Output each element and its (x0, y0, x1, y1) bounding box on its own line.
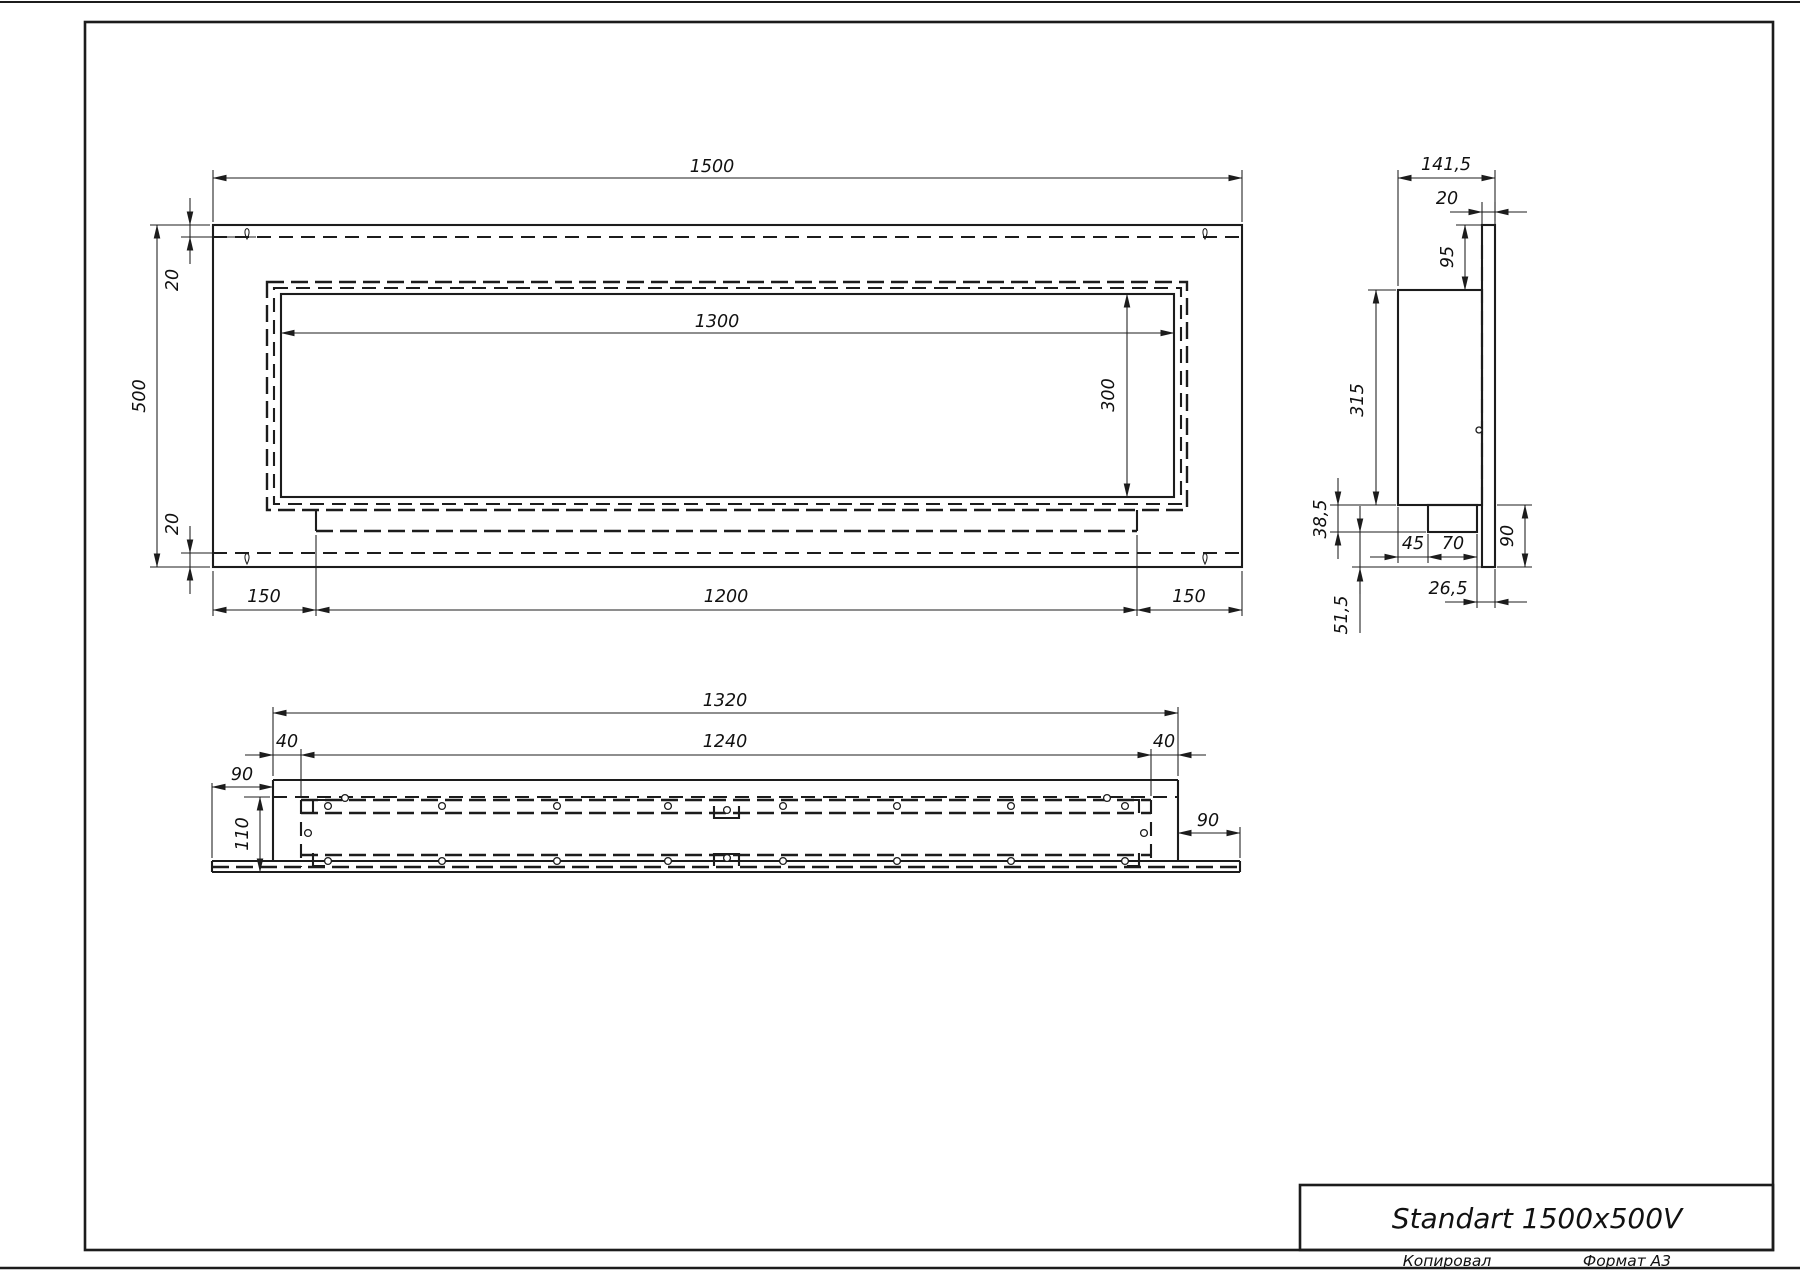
side-hole (1476, 427, 1482, 433)
dim-text: 1300 (695, 312, 740, 332)
dim-text: 315 (1348, 383, 1368, 416)
dim-text: 70 (1442, 534, 1464, 554)
dim-text: 40 (276, 732, 298, 752)
dim-text: 20 (1436, 189, 1458, 209)
dim-side-gap: 51,5 (1332, 506, 1482, 634)
side-tray (1428, 505, 1477, 532)
dim-bottom-tab-right: 90 (1178, 811, 1240, 858)
dim-front-inset-top: 20 (163, 198, 256, 291)
dim-text: 90 (1498, 525, 1518, 547)
drawing-sheet: Standart 1500x500V Копировал Формат А3 1… (0, 0, 1800, 1273)
dim-text: 26,5 (1429, 579, 1468, 599)
dim-text: 1320 (703, 691, 748, 711)
dim-text: 1500 (690, 157, 735, 177)
title-block-model: Standart 1500x500V (1392, 1202, 1684, 1235)
dim-front-opening-height: 300 (1099, 294, 1127, 497)
bottom-corner-bracket (313, 800, 325, 813)
dim-text: 20 (163, 513, 183, 535)
bottom-view: 1320 1240 40 40 90 110 (212, 691, 1240, 872)
dim-text: 300 (1099, 378, 1119, 411)
dim-text: 110 (233, 817, 253, 850)
dim-side-body-height: 315 (1330, 290, 1396, 505)
dim-bottom-opening-chain: 1240 40 40 (245, 732, 1206, 796)
dim-text: 150 (1172, 587, 1205, 607)
dim-text: 38,5 (1311, 500, 1331, 539)
dim-front-inset-bottom: 20 (163, 513, 212, 594)
side-front-plate (1482, 225, 1495, 567)
side-body (1398, 290, 1482, 505)
dim-front-bottom-chain: 150 1200 150 (213, 535, 1242, 616)
dim-text: 150 (247, 587, 280, 607)
dim-front-width: 1500 (213, 157, 1242, 222)
dim-text: 1240 (703, 732, 748, 752)
dim-text: 500 (130, 379, 150, 412)
mounting-hook-icons (245, 229, 1207, 565)
dim-text: 95 (1438, 246, 1458, 268)
dim-side-plate-above: 95 (1438, 225, 1482, 290)
format-label: Формат А3 (1583, 1252, 1671, 1270)
dim-text: 20 (163, 269, 183, 291)
drawing-border (85, 22, 1773, 1250)
mounting-hook-icon (245, 554, 249, 565)
dim-text: 51,5 (1332, 596, 1352, 635)
dim-side-plate-below: 90 (1497, 505, 1532, 567)
mounting-hook-icon (1203, 554, 1207, 565)
side-view: 141,5 20 95 315 38 (1311, 155, 1532, 634)
dim-text: 90 (231, 765, 253, 785)
dim-text: 90 (1197, 811, 1219, 831)
dim-text: 45 (1402, 534, 1424, 554)
dim-side-tray-chain: 45 70 (1370, 507, 1477, 563)
dim-side-plate-thickness: 20 (1436, 189, 1527, 225)
dim-text: 40 (1153, 732, 1175, 752)
front-view: 1500 500 20 20 1300 (130, 157, 1242, 616)
copied-label: Копировал (1403, 1252, 1492, 1270)
dim-front-opening-width: 1300 (281, 312, 1174, 333)
dim-text: 141,5 (1421, 155, 1471, 175)
drawing-canvas: Standart 1500x500V Копировал Формат А3 1… (0, 0, 1800, 1273)
sheet-frame: Standart 1500x500V Копировал Формат А3 (0, 2, 1800, 1270)
front-outer-contour (213, 225, 1242, 567)
dim-text: 1200 (704, 587, 749, 607)
